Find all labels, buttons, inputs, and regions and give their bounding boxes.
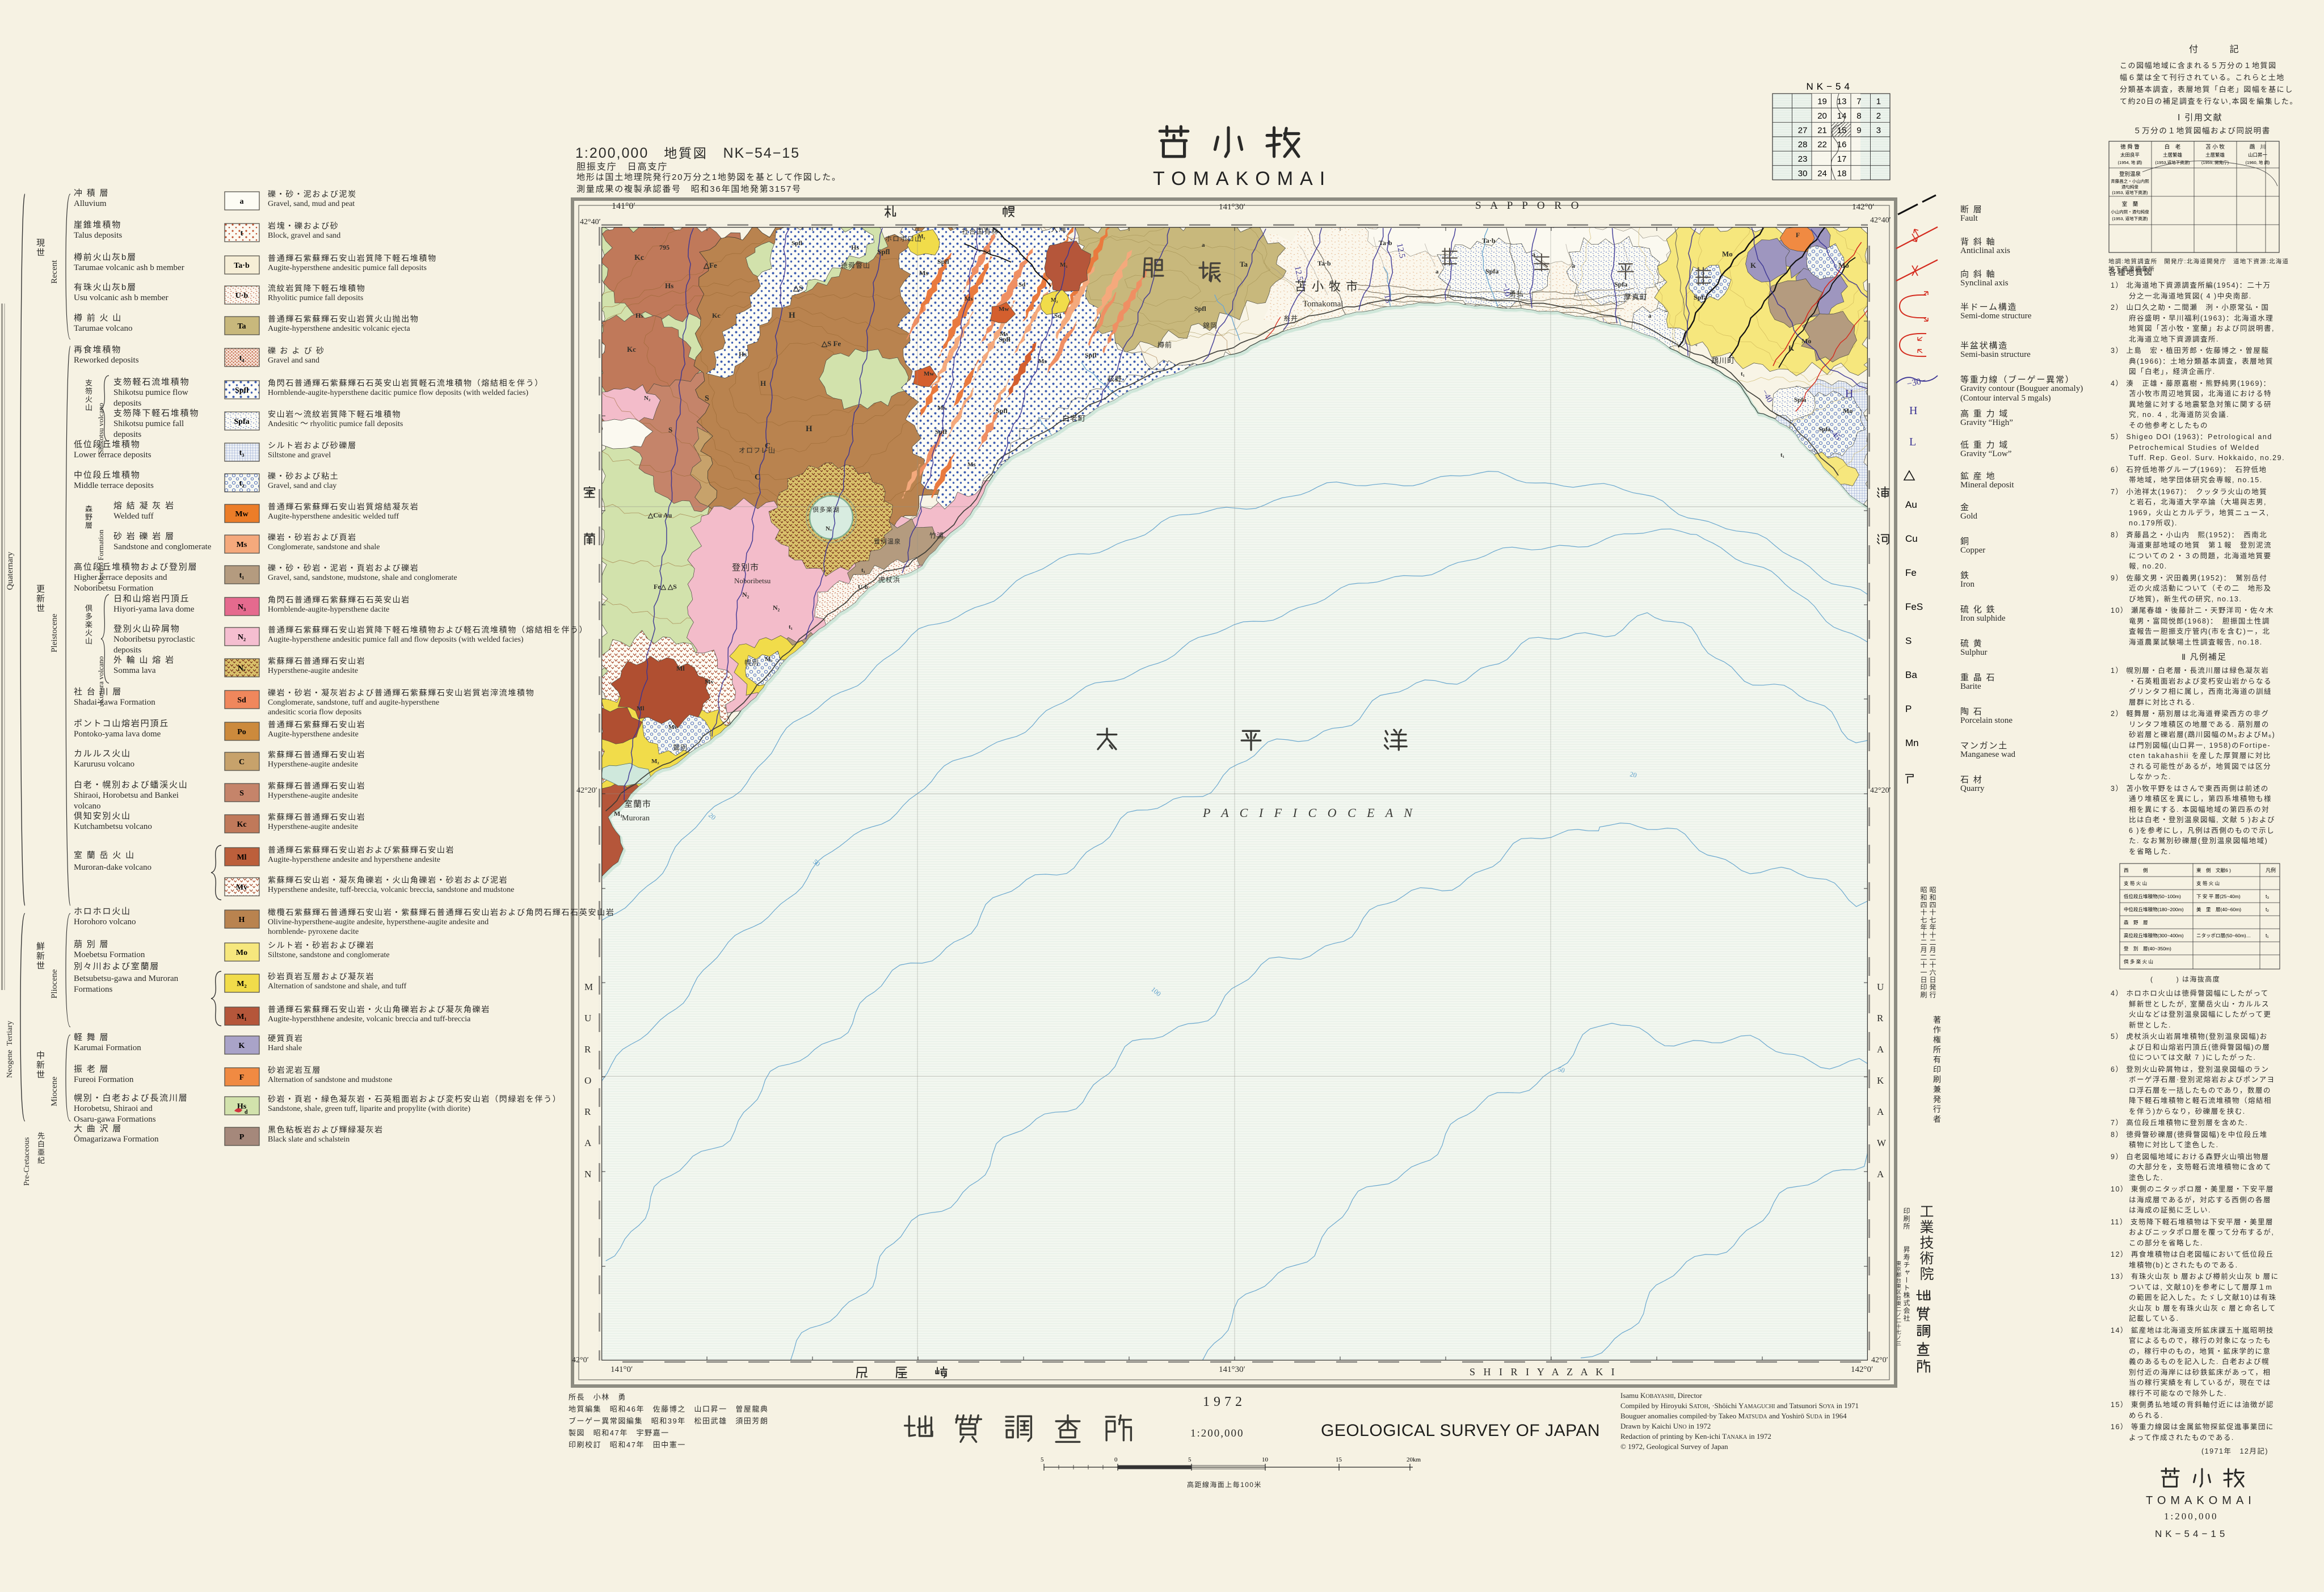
svg-text:糸井: 糸井: [1283, 314, 1298, 322]
svg-text:P A C I F I C O C E A N: P A C I F I C O C E A N: [1202, 806, 1416, 820]
svg-text:t₁: t₁: [2266, 933, 2269, 938]
svg-text:N₂: N₂: [644, 395, 651, 402]
svg-text:Ms: Ms: [965, 296, 973, 302]
svg-text:N₃: N₃: [238, 603, 246, 612]
svg-text:徳舜瞥山: 徳舜瞥山: [841, 261, 870, 269]
svg-text:Spfl: Spfl: [877, 247, 890, 256]
svg-text:S: S: [668, 426, 672, 434]
svg-text:M₁: M₁: [237, 1013, 246, 1021]
svg-text:Spfa: Spfa: [1614, 280, 1627, 288]
svg-text:△Cu Au: △Cu Au: [647, 511, 672, 519]
svg-text:Ms: Ms: [1038, 358, 1047, 365]
svg-text:795: 795: [659, 243, 670, 251]
svg-text:K: K: [1788, 344, 1795, 352]
svg-text:ニタッポロ層(50~60m)…: ニタッポロ層(50~60m)…: [2196, 933, 2251, 938]
svg-text:室蘭市: 室蘭市: [624, 799, 651, 809]
svg-text:H: H: [760, 379, 766, 388]
svg-text:15: 15: [1336, 1457, 1342, 1463]
svg-text:Spfl: Spfl: [1085, 351, 1097, 359]
svg-text:Mo: Mo: [1838, 261, 1849, 269]
svg-text:t₁: t₁: [789, 624, 793, 630]
svg-text:Sd: Sd: [237, 696, 246, 705]
svg-text:H: H: [1845, 388, 1853, 400]
svg-text:Spfl: Spfl: [937, 258, 949, 266]
svg-text:P: P: [1905, 704, 1912, 714]
svg-text:Kc: Kc: [237, 820, 246, 829]
svg-text:Spfl: Spfl: [1194, 305, 1206, 313]
svg-text:Kc: Kc: [627, 345, 636, 353]
svg-text:鵡川町: 鵡川町: [1711, 356, 1735, 365]
svg-text:Ta·b: Ta·b: [1379, 239, 1392, 247]
svg-text:a: a: [1648, 313, 1652, 319]
svg-text:Spfa: Spfa: [234, 418, 249, 426]
svg-text:S: S: [239, 789, 244, 798]
svg-text:Mw: Mw: [235, 510, 249, 519]
svg-text:H: H: [239, 916, 245, 924]
svg-text:Ms: Ms: [919, 269, 928, 277]
svg-text:a: a: [1435, 268, 1439, 275]
svg-text:Ms: Ms: [967, 461, 976, 468]
svg-text:Spfl: Spfl: [235, 386, 249, 395]
svg-text:Cu: Cu: [1905, 533, 1918, 544]
svg-text:鵡 川: 鵡 川: [2250, 144, 2266, 150]
svg-text:Ta·b: Ta·b: [1317, 259, 1331, 267]
svg-text:Mv: Mv: [236, 883, 247, 892]
svg-text:東 側 文献6 ): 東 側 文献6 ): [2196, 867, 2231, 873]
svg-text:Kc: Kc: [634, 254, 644, 262]
svg-text:C: C: [755, 473, 760, 482]
svg-text:苫 小 牧: 苫 小 牧: [2205, 144, 2225, 150]
svg-text:(1953,道地下資源): (1953,道地下資源): [2155, 159, 2190, 165]
svg-text:U·b: U·b: [858, 584, 868, 591]
svg-text:Spfa: Spfa: [1794, 397, 1807, 403]
svg-text:H: H: [1909, 405, 1917, 417]
svg-text:20km: 20km: [1407, 1457, 1421, 1463]
svg-text:t₄: t₄: [239, 354, 245, 363]
svg-text:S: S: [705, 394, 709, 403]
svg-text:Kc: Kc: [712, 311, 721, 319]
svg-text:F: F: [1796, 231, 1800, 239]
svg-text:N₂: N₂: [742, 591, 750, 599]
svg-text:室 蘭: 室 蘭: [2122, 201, 2138, 208]
svg-text:M₂: M₂: [918, 234, 925, 240]
svg-text:倶多楽湖: 倶多楽湖: [812, 506, 840, 513]
svg-text:支 笏 火 山: 支 笏 火 山: [2124, 881, 2147, 886]
svg-text:t₂: t₂: [239, 479, 245, 488]
svg-text:Ta·b: Ta·b: [234, 262, 250, 270]
svg-text:M₂: M₂: [237, 980, 246, 988]
svg-text:a: a: [240, 197, 244, 206]
svg-text:支 笏 火 山: 支 笏 火 山: [2196, 881, 2220, 886]
svg-text:S: S: [1905, 635, 1912, 646]
svg-text:Fe△ △S: Fe△ △S: [654, 583, 677, 591]
svg-text:Ml: Ml: [237, 853, 246, 862]
svg-text:t₂: t₂: [2266, 907, 2270, 912]
svg-text:F: F: [239, 1073, 245, 1082]
svg-text:酒匂純俊: 酒匂純俊: [2121, 184, 2138, 189]
svg-text:幌別: 幌別: [744, 658, 759, 667]
svg-text:5: 5: [1041, 1457, 1044, 1463]
svg-text:t: t: [241, 229, 243, 238]
svg-text:Mo: Mo: [1843, 407, 1853, 415]
svg-text:登別市: 登別市: [732, 563, 759, 572]
svg-text:Noboribetsu: Noboribetsu: [734, 576, 771, 585]
svg-text:山口昇一: 山口昇一: [2248, 152, 2268, 158]
svg-text:M₁: M₁: [1060, 262, 1068, 268]
svg-text:Ta: Ta: [237, 322, 246, 331]
svg-text:下 安 平 層(25~40m): 下 安 平 層(25~40m): [2196, 894, 2241, 899]
svg-text:K: K: [239, 1042, 245, 1050]
svg-text:△Fe: △Fe: [703, 261, 717, 269]
svg-text:Spfa: Spfa: [1485, 267, 1498, 275]
svg-text:t₁: t₁: [1741, 370, 1745, 377]
svg-text:倶 多 楽 火 山: 倶 多 楽 火 山: [2124, 959, 2153, 965]
svg-text:竹浦: 竹浦: [929, 532, 944, 540]
svg-text:U·b: U·b: [235, 292, 249, 300]
svg-text:白 老: 白 老: [2165, 144, 2181, 150]
svg-text:t₁: t₁: [861, 567, 865, 574]
svg-text:斉藤昌之・小山内熙: 斉藤昌之・小山内熙: [2111, 178, 2149, 184]
svg-text:森 野 層: 森 野 層: [2124, 920, 2148, 925]
svg-text:樽前: 樽前: [1157, 340, 1172, 349]
svg-text:0: 0: [1114, 1457, 1118, 1463]
svg-text:C: C: [239, 758, 245, 766]
svg-text:Mn: Mn: [1905, 738, 1919, 748]
svg-text:Ta·b: Ta·b: [1482, 237, 1496, 245]
svg-text:高位段丘堆積物(300~400m): 高位段丘堆積物(300~400m): [2124, 933, 2184, 938]
svg-text:小山内熙・酒匂純俊: 小山内熙・酒匂純俊: [2111, 209, 2149, 214]
svg-text:(1960, 地 調): (1960, 地 調): [2246, 159, 2270, 165]
svg-text:Tomakomai: Tomakomai: [1303, 300, 1343, 309]
svg-text:Hs: Hs: [635, 311, 643, 319]
svg-text:K: K: [1750, 261, 1757, 269]
svg-text:5: 5: [1188, 1457, 1192, 1463]
svg-text:a: a: [1532, 250, 1535, 258]
svg-text:M₁: M₁: [614, 810, 622, 818]
svg-text:Hs: Hs: [739, 350, 747, 358]
svg-text:△S Fe: △S Fe: [821, 339, 841, 348]
svg-text:10: 10: [1262, 1457, 1269, 1463]
svg-text:t₃: t₃: [239, 449, 245, 457]
svg-text:登 別 層(40~350m): 登 別 層(40~350m): [2124, 946, 2171, 951]
svg-text:白老町: 白老町: [1062, 414, 1086, 423]
svg-text:低位段丘堆積物(50~100m): 低位段丘堆積物(50~100m): [2124, 894, 2181, 899]
svg-text:土居繁雄: 土居繁雄: [2205, 152, 2225, 158]
svg-text:太田良平: 太田良平: [2120, 152, 2140, 158]
svg-text:苫小牧市: 苫小牧市: [1295, 280, 1363, 293]
svg-text:t₃: t₃: [2266, 894, 2270, 899]
svg-text:萩野: 萩野: [1108, 375, 1122, 383]
svg-text:大滝: 大滝: [1051, 227, 1067, 233]
svg-text:Nᵥ: Nᵥ: [238, 664, 246, 673]
svg-text:Mv: Mv: [668, 724, 677, 731]
svg-text:Ta: Ta: [1240, 260, 1248, 268]
svg-text:Ba: Ba: [1905, 669, 1917, 680]
svg-text:勇払: 勇払: [1509, 290, 1524, 298]
svg-text:△S: △S: [793, 284, 803, 292]
svg-text:Ml: Ml: [637, 705, 644, 712]
svg-text:Spfa: Spfa: [1694, 293, 1707, 301]
svg-text:M₂: M₂: [651, 758, 659, 765]
svg-text:中位段丘堆積物(180~200m): 中位段丘堆積物(180~200m): [2124, 907, 2184, 912]
svg-text:Mw: Mw: [999, 306, 1009, 313]
svg-text:Mo: Mo: [236, 949, 247, 957]
svg-text:厚真町: 厚真町: [1624, 293, 1648, 301]
svg-text:N₂: N₂: [238, 633, 246, 642]
svg-text:(1954, 地 調): (1954, 地 調): [2118, 159, 2142, 165]
svg-text:t₁: t₁: [1780, 452, 1784, 458]
svg-text:登別温泉: 登別温泉: [2119, 171, 2141, 178]
svg-text:Sd: Sd: [983, 248, 991, 256]
svg-text:Spfl: Spfl: [996, 407, 1008, 415]
svg-text:美 里 層(40~60m): 美 里 層(40~60m): [2196, 907, 2241, 912]
svg-text:a: a: [1202, 242, 1205, 249]
svg-text:Muroran: Muroran: [622, 814, 650, 823]
svg-text:Ms: Ms: [937, 405, 946, 411]
svg-text:鷲別: 鷲別: [673, 744, 688, 752]
svg-text:Fe: Fe: [1905, 567, 1917, 578]
svg-text:H: H: [789, 311, 795, 320]
svg-text:登別温泉: 登別温泉: [874, 537, 901, 545]
svg-text:Po: Po: [237, 728, 246, 736]
svg-text:Mo: Mo: [1801, 337, 1811, 345]
svg-text:FeS: FeS: [1905, 601, 1923, 612]
svg-text:(1953, 道地下資源): (1953, 道地下資源): [2112, 189, 2148, 195]
svg-text:Ml: Ml: [676, 664, 685, 672]
svg-text:d: d: [245, 1109, 248, 1115]
svg-text:Ms: Ms: [237, 541, 247, 549]
svg-text:Ms: Ms: [1000, 331, 1008, 338]
svg-text:M₂: M₂: [765, 656, 773, 663]
svg-text:Spfl: Spfl: [935, 428, 947, 436]
svg-text:P: P: [239, 1133, 245, 1142]
svg-text:H: H: [806, 424, 812, 433]
svg-text:社台国有林: 社台国有林: [962, 227, 999, 235]
svg-text:Nᵥ: Nᵥ: [826, 525, 832, 532]
svg-text:Spfl: Spfl: [791, 240, 802, 247]
svg-text:N₂: N₂: [773, 604, 780, 612]
svg-text:Hs: Hs: [851, 243, 859, 251]
svg-text:t₁: t₁: [239, 571, 245, 580]
svg-text:Mv: Mv: [705, 679, 714, 685]
svg-text:錦岡: 錦岡: [1203, 321, 1218, 330]
svg-text:Mo: Mo: [1722, 250, 1733, 258]
svg-text:Mw: Mw: [924, 370, 934, 377]
svg-text:徳 舜 瞥: 徳 舜 瞥: [2120, 144, 2140, 150]
svg-text:M₂: M₂: [1051, 297, 1058, 304]
svg-text:ホロホロ山: ホロホロ山: [885, 235, 922, 243]
svg-text:(1953, 道地下資源): (1953, 道地下資源): [2112, 216, 2148, 221]
svg-text:虎杖浜: 虎杖浜: [878, 575, 900, 584]
svg-text:Hs: Hs: [665, 281, 673, 290]
svg-text:a: a: [1572, 262, 1575, 269]
svg-text:凡例: 凡例: [2266, 867, 2276, 873]
svg-text:C: C: [765, 442, 771, 450]
svg-text:Spfa: Spfa: [1818, 426, 1831, 433]
svg-text:Au: Au: [1905, 499, 1917, 510]
svg-text:Sd: Sd: [1054, 313, 1061, 319]
svg-text:L: L: [1909, 436, 1916, 448]
svg-text:Sd: Sd: [1018, 281, 1025, 288]
svg-text:土居繁雄: 土居繁雄: [2163, 152, 2183, 158]
svg-text:西 側: 西 側: [2124, 867, 2148, 873]
